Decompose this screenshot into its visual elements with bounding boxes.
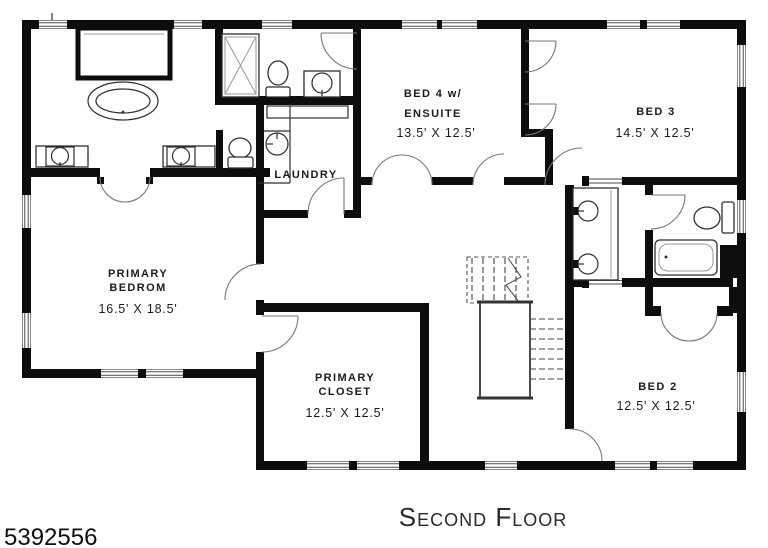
window-icon [174,21,202,29]
window-icon [647,21,680,29]
room-dims-bed2: 12.5' X 12.5' [616,399,695,413]
laundry-sink-icon [266,133,288,155]
window-icon [738,372,746,412]
bed2-closet-door-right [689,313,717,341]
toilet-icon [266,61,290,97]
room-label-primary-bedroom-line2: BEDROM [109,282,166,294]
laundry-door-arc [308,178,344,214]
bed4-double-door-left [372,155,402,185]
primary-bedroom-door-arc [225,264,261,300]
window-icon [442,21,477,29]
window-icon [101,370,138,378]
window-icon [357,462,399,470]
room-dims-bed3: 14.5' X 12.5' [615,126,694,140]
window-icon [39,21,67,29]
window-icon [146,370,183,378]
staircase [467,257,565,398]
window-icon [738,45,746,87]
bed2-closet-door-left [661,313,689,341]
photo-id: 5392556 [4,524,97,548]
hall-door-arc [473,154,504,185]
window-icon [307,462,349,470]
toilet-icon [228,138,253,168]
window-icon [23,313,31,348]
room-dims-bed4: 13.5' X 12.5' [396,126,475,140]
bed3-closet-door-arc [525,41,556,72]
room-label-primary-closet-line2: CLOSET [318,386,371,398]
window-icon [607,21,640,29]
fixtures [36,28,734,280]
room-label-laundry: LAUNDRY [274,169,337,181]
ensuite-door-arc [321,33,357,69]
bathtub-icon [88,82,158,120]
window-icon [23,195,31,228]
floorplan-page: BED 4 w/ ENSUITE 13.5' X 12.5' BED 3 14.… [0,0,768,548]
room-label-primary-bedroom-line1: PRIMARY [108,268,168,280]
sink-icon [36,146,88,167]
stair-railing [480,302,530,398]
room-dims-primary-closet: 12.5' X 12.5' [305,406,384,420]
bed2-entry-door-arc [570,429,602,461]
bath-wc-door-arc [651,195,685,229]
double-vanity-icon [573,188,618,280]
room-label-bed4-line2: ENSUITE [404,108,461,120]
bed4-double-door-right [402,155,432,185]
room-label-bed3: BED 3 [636,106,675,118]
stairs-open-below-outline [467,257,528,303]
room-label-primary-closet-line1: PRIMARY [315,372,375,384]
room-label-bed4-line1: BED 4 w/ [404,88,462,100]
window-icon [738,200,746,233]
primary-closet-door-arc [262,316,298,352]
toilet-icon [694,202,734,233]
shower-icon [222,34,259,97]
window-icon [402,21,437,29]
room-label-bed2: BED 2 [638,381,677,393]
stair-break-line [506,258,521,302]
window-icon [485,462,517,470]
floorplan-drawing: BED 4 w/ ENSUITE 13.5' X 12.5' BED 3 14.… [0,0,768,548]
window-icon [657,462,693,470]
floor-caption: Second Floor [399,502,567,532]
room-dims-primary-bedroom: 16.5' X 18.5' [98,302,177,316]
bathtub-alcove-icon [655,240,717,275]
sink-icon [304,71,340,97]
window-icon [262,21,292,29]
wardrobe-icon [78,28,170,78]
sink-icon [163,146,215,167]
window-icon [615,462,650,470]
